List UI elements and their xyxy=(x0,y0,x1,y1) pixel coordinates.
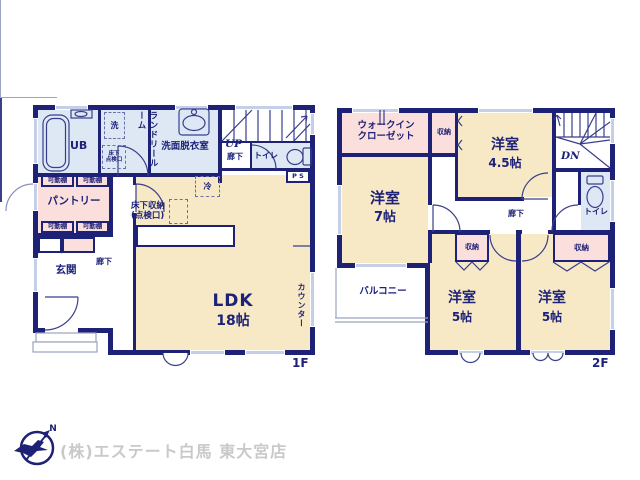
wall xyxy=(109,173,113,237)
label-room5-left-size: 5帖 xyxy=(442,310,482,324)
window xyxy=(478,108,533,113)
window xyxy=(610,288,615,330)
fridge-label: 冷 xyxy=(204,182,212,192)
window xyxy=(337,185,342,235)
wall xyxy=(33,328,45,333)
compass-north-label: N xyxy=(49,424,57,434)
room-45 xyxy=(458,113,552,197)
label-room5-right: 洋室 xyxy=(532,290,572,307)
label-room45: 洋室 xyxy=(484,137,526,154)
label-stairs-up: UP xyxy=(225,138,242,151)
label-counter: カウンター xyxy=(296,283,307,333)
label-floor-2f: 2F xyxy=(592,356,609,370)
washer-label: 洗 xyxy=(111,121,119,131)
label-ldk: LDK xyxy=(203,291,263,311)
window xyxy=(610,118,615,144)
wall xyxy=(428,113,432,205)
window xyxy=(33,258,38,292)
label-pantry: パントリー xyxy=(42,195,106,208)
movable-shelf-label: 可動棚 xyxy=(83,177,103,185)
wall xyxy=(458,197,524,201)
label-entrance: 玄関 xyxy=(46,264,86,277)
window xyxy=(55,105,88,110)
movable-shelf-label: 可動棚 xyxy=(48,177,68,185)
balcony-door xyxy=(355,263,407,268)
window xyxy=(458,350,484,355)
wall xyxy=(98,110,101,175)
label-balcony: バルコニー xyxy=(348,286,418,297)
compass-logo: N xyxy=(12,419,64,471)
label-washroom: 洗面脱衣室 xyxy=(153,141,217,152)
wall xyxy=(428,232,432,263)
pipe-space-label: P S xyxy=(292,173,304,181)
label-stairs-dn: DN xyxy=(561,150,580,163)
label-room5-left: 洋室 xyxy=(442,290,482,307)
bird-icon xyxy=(14,440,48,457)
closet-left: 収納 xyxy=(455,233,489,262)
wall xyxy=(342,153,458,157)
fridge-space: 冷 xyxy=(195,176,220,197)
window xyxy=(175,105,208,110)
label-wic: ウォークイン クローゼット xyxy=(344,120,428,143)
window xyxy=(530,350,565,355)
underfloor-hatch-label: 床下 点検口 xyxy=(106,151,123,164)
label-toilet-1f: トイレ xyxy=(254,151,278,161)
window xyxy=(235,105,293,110)
floorplan-2f: 収納 収納 ウォークイン クローゼット 収納 洋室 4.5帖 DN トイレ 洋室… xyxy=(0,0,640,480)
movable-shelf: 可動棚 xyxy=(76,175,109,187)
wall xyxy=(455,113,458,201)
wall xyxy=(108,328,113,355)
window xyxy=(33,118,38,164)
underfloor-hatch: 床下 点検口 xyxy=(102,145,126,169)
pipe-space-box: P S xyxy=(286,170,310,183)
wall xyxy=(578,172,581,205)
wall xyxy=(516,234,521,350)
label-underfloor-storage: 床下収納 (点検口) xyxy=(131,202,165,222)
company-name: (株)エステート白馬 東大宮店 xyxy=(60,438,287,462)
washer-space: 洗 xyxy=(104,112,125,139)
window xyxy=(610,180,615,222)
movable-shelf-label: 可動棚 xyxy=(48,223,68,231)
window xyxy=(352,108,399,113)
window xyxy=(310,113,315,135)
label-closet-top: 収納 xyxy=(433,128,455,136)
label-room7-size: 7帖 xyxy=(364,210,406,226)
label-upper-hall: 廊下 xyxy=(227,152,243,162)
label-ldk-size: 18帖 xyxy=(203,313,263,330)
closet-label: 収納 xyxy=(465,243,479,251)
window xyxy=(33,183,38,211)
shoe-cabinet xyxy=(62,237,95,253)
movable-shelf: 可動棚 xyxy=(41,175,74,187)
movable-shelf: 可動棚 xyxy=(76,221,109,233)
wall xyxy=(218,110,222,183)
label-room45-size: 4.5帖 xyxy=(484,156,526,170)
window xyxy=(245,350,285,355)
label-hall-2f: 廊下 xyxy=(508,209,524,219)
movable-shelf-label: 可動棚 xyxy=(83,223,103,231)
movable-shelf: 可動棚 xyxy=(41,221,74,233)
wall xyxy=(425,263,430,355)
underfloor-storage-box xyxy=(169,199,188,224)
wall xyxy=(133,175,136,185)
closet-right: 収納 xyxy=(553,233,610,262)
label-hall-1f: 廊下 xyxy=(96,257,112,267)
kitchen-counter xyxy=(136,225,235,247)
closet-label: 収納 xyxy=(574,243,589,252)
shoe-box-x xyxy=(38,237,62,253)
room-toilet-2f xyxy=(581,172,610,230)
wall xyxy=(250,143,252,170)
label-room7: 洋室 xyxy=(364,189,406,207)
footer: N (株)エステート白馬 東大宮店 xyxy=(0,414,640,480)
window xyxy=(190,350,225,355)
label-floor-1f: 1F xyxy=(292,356,309,370)
wall xyxy=(552,113,556,233)
label-room5-right-size: 5帖 xyxy=(532,310,572,324)
label-ub: UB xyxy=(70,139,98,152)
label-toilet-2f: トイレ xyxy=(583,207,609,217)
wall xyxy=(552,168,614,172)
window xyxy=(310,272,315,327)
wall xyxy=(425,350,615,355)
floorplan-canvas: P S 可動棚 可動棚 可動棚 可動棚 洗 床下 点検口 冷 UB ランドリール… xyxy=(0,0,640,480)
